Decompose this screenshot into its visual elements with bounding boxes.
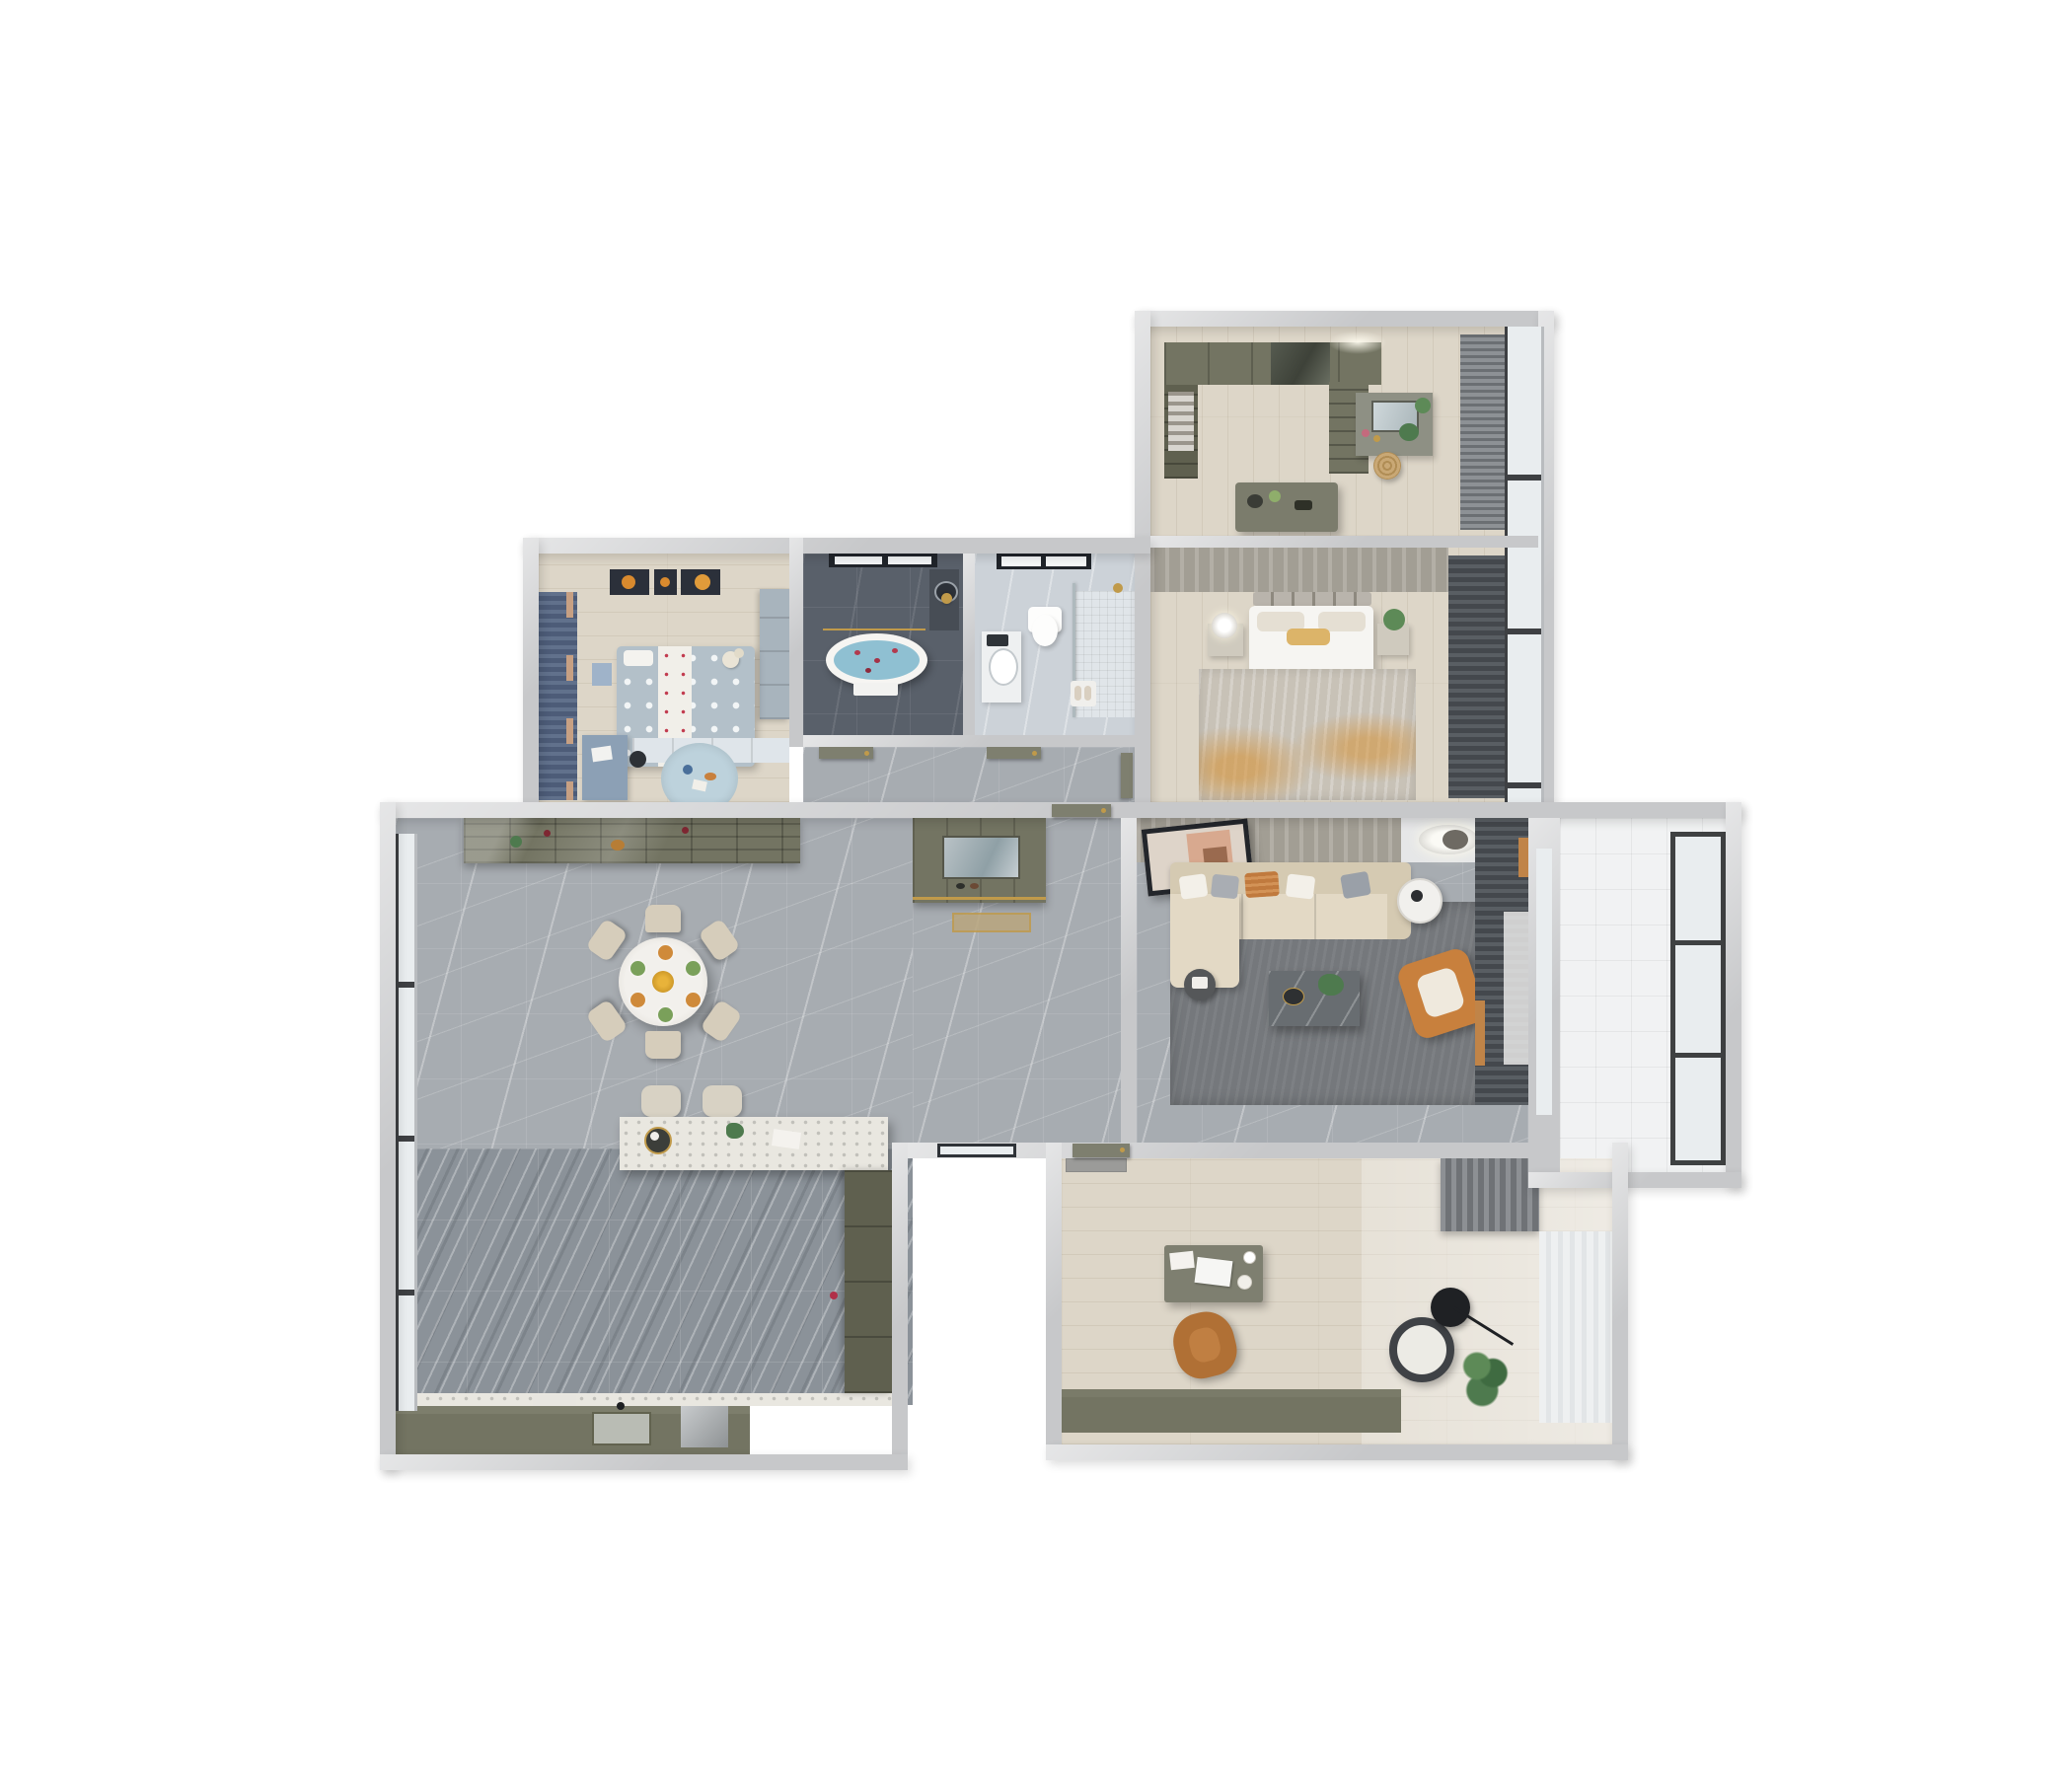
dining-chair-s [645,1031,681,1059]
console-gold-trim [913,897,1046,900]
bar-stool-1 [641,1085,681,1117]
wall-kitchen-bottom [380,1454,908,1470]
place-setting-5 [629,991,647,1009]
bedroom-curtains [1448,555,1505,798]
console-shoes-2 [970,883,979,889]
wall-office-bottom [1046,1444,1628,1460]
gold-towel-rail [823,629,925,630]
room-foyer [913,818,1121,1143]
living-sheer [1504,912,1528,1065]
toy-2 [704,773,716,780]
rattan-basket [1373,452,1401,480]
laptop [1195,1257,1233,1287]
place-setting-2 [684,959,703,978]
ceiling-hatch [1066,1158,1127,1172]
room-walk-in-closet [1150,327,1505,536]
wall-art-planet-3 [695,574,710,590]
wall-bath-divider [963,554,975,747]
toy-1 [683,765,693,775]
kids-wardrobe [760,589,789,719]
room-hallway [803,747,1135,802]
bedroom-rug [1199,669,1416,800]
bath-window-pane-1 [835,556,882,564]
ring-light-center [1443,830,1468,850]
pillow-gray-2 [1340,871,1371,899]
teddy-bear-head [734,648,744,658]
kids-nightstand [592,663,612,686]
perfume-bottles [1362,429,1369,437]
console-mirror [942,836,1020,879]
tall-cabinets [845,1170,892,1393]
wall-balcony-bottom [1528,1172,1741,1188]
wall-kids-left [523,538,539,818]
room-guest-bathroom [975,554,1135,735]
dining-glass-door [937,1144,1016,1157]
room-kids-bedroom [539,554,789,802]
gold-shower-fixture [1113,583,1123,593]
headboard-wall-panel [1150,548,1448,592]
small-table-book [1192,977,1208,989]
backsplash-counter [396,1393,892,1406]
study-door-handle [1120,1147,1125,1152]
vanity-dark-tray [987,634,1008,646]
arc-floor-lamp-disc [1431,1288,1470,1327]
wall-baths-bottom [803,735,1135,747]
dessert-plate [1237,1275,1252,1290]
slipper-2 [1084,686,1091,701]
wall-art-planet-2 [660,577,670,587]
pillow-white-2 [1286,873,1316,899]
wall-art-planet-1 [622,575,635,589]
hanging-clothes [1168,392,1194,451]
cutting-board [533,1395,576,1406]
room-study [1062,1158,1612,1444]
towel [853,683,898,696]
slipper-1 [1074,686,1081,701]
closet-window-blinds [1460,334,1505,530]
place-setting-4 [656,1005,675,1024]
ceiling-light-glow [1328,331,1387,354]
wall-foyer-living [1121,818,1137,1143]
coffee-table-tray [1283,988,1304,1005]
rose-petal-2 [874,658,880,663]
wall-kids-bath-divider [789,538,803,747]
apartment-floorplan-render: { "scene": { "title": "3D apartment floo… [0,0,2072,1776]
wall-closet-top [1135,311,1554,327]
toilet-bowl [1032,615,1058,646]
wall-closet-left [1135,311,1150,818]
sideboard-plant [510,836,522,848]
flower-vase [1269,490,1281,502]
vanity-sink [989,648,1018,686]
guest-bath-pane-1 [1001,556,1041,566]
pillow-gray-1 [1211,874,1239,900]
balcony-window [1670,832,1726,1165]
balcony-window-divider-2 [1672,1053,1724,1058]
glass-wardrobe [1271,342,1330,385]
side-table-decor [1411,890,1423,902]
lounge-chair [1389,1317,1454,1382]
jewelry-box [1295,500,1312,510]
rose-petal-4 [865,668,871,673]
wall-closet-bedroom-divider [1150,536,1538,548]
entry-door-handle [1101,808,1106,813]
room-balcony [1560,818,1726,1172]
door-handle-2 [1032,751,1037,756]
pillow-white-1 [1179,873,1209,900]
bedroom-door [1121,753,1133,798]
room-master-bathroom [803,554,963,735]
island-plant [726,1123,744,1139]
place-setting-1 [656,943,675,962]
study-curtain [1441,1158,1539,1231]
wall-left-exterior [380,802,396,1470]
wine-bottle-2 [682,827,689,834]
balcony-door-glass [1536,849,1552,1115]
dining-chair-n [645,905,681,932]
kids-laptop [591,746,613,763]
console-shoes [956,883,965,889]
kids-pillow [624,650,653,666]
island-tray [644,1127,672,1154]
potted-plant [1458,1342,1512,1411]
bar-stool-2 [703,1085,742,1117]
floor-decor-red [830,1292,838,1299]
wine-bottle-1 [544,830,551,837]
vanity-plant [1399,423,1419,441]
wall-office-left [1046,1143,1062,1460]
room-living [1137,818,1528,1143]
gold-shower-head [941,593,952,604]
kids-curtain-tieback [566,592,573,800]
coffee-table-plant [1318,974,1344,996]
pillow-orange-striped [1244,871,1280,898]
room-dining-kitchen [396,818,913,1454]
room-master-bedroom [1150,548,1505,802]
rose-petal-3 [892,648,898,653]
place-setting-6 [629,959,647,978]
curtain-orange-accent [1475,1000,1485,1066]
kitchen-floor [396,1148,913,1405]
cooktop-appliance [681,1406,728,1447]
decor-bowl-gold [611,840,625,851]
curtain-orange-accent-2 [1518,838,1528,877]
sink-faucet [617,1402,625,1410]
perfume-tray [1247,494,1263,508]
desk-papers [1169,1251,1195,1270]
bedroom-window-band [1505,327,1544,802]
bath-window-pane-2 [888,556,931,564]
study-sheer-window [1539,1231,1612,1423]
coffee-cup [1243,1251,1256,1264]
wall-office-right [1612,1143,1628,1460]
balcony-window-divider-1 [1672,940,1724,945]
perfume-bottles-2 [1373,435,1380,442]
table-lamp [1212,613,1237,638]
door-handle-1 [864,751,869,756]
doormat [952,913,1031,932]
guest-bath-pane-2 [1046,556,1086,566]
dining-kitchen-window [396,834,417,1411]
nightstand-plant [1383,609,1405,630]
rose-petal [854,650,860,655]
flower-centerpiece [652,971,674,993]
kids-desk-chair [629,751,646,768]
vanity-plant-2 [1415,398,1431,413]
island-teapot [650,1132,659,1141]
wall-kitchen-right [892,1143,908,1470]
wall-balcony-right [1726,802,1741,1188]
place-setting-3 [684,991,703,1009]
headboard [1253,592,1371,606]
low-bookcase [1062,1389,1401,1433]
accent-pillow [1287,629,1330,645]
wall-center-top [523,538,1150,554]
kids-desk [582,735,628,800]
kitchen-sink [592,1412,651,1445]
